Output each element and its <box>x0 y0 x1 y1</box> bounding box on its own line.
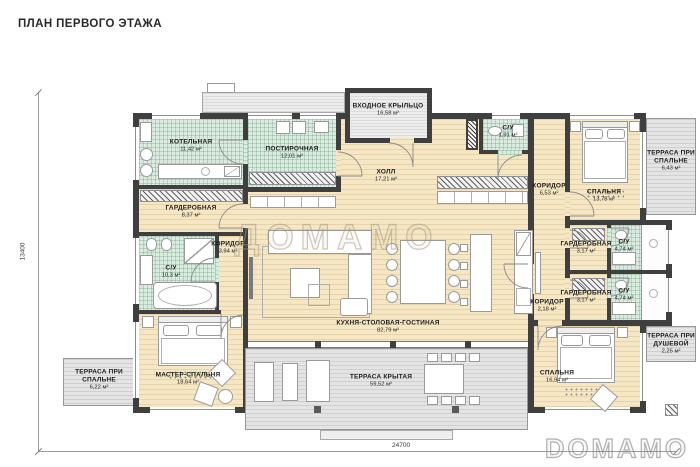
room-label-hall: ХОЛЛ17,21 м² <box>375 169 397 184</box>
dimension-height-label: 13400 <box>20 242 27 260</box>
room-label-bedroom-top: СПАЛЬНЯ13,78 м² <box>587 189 621 204</box>
room-label-terrace-shower: ТЕРРАСА ПРИ ДУШЕВОЙ2,25 м² <box>644 333 698 356</box>
floor-plan: ПЛАН ПЕРВОГО ЭТАЖА 24700 13400 <box>0 0 700 467</box>
watermark-corner: DOMAMO <box>545 434 689 465</box>
room-label-wc-2: С/У4,74 м² <box>615 288 634 303</box>
room-label-bathroom-master: С/У10,3 м² <box>162 265 181 280</box>
room-label-wardrobe-main: ГАРДЕРОБНАЯ8,37 м² <box>165 205 216 220</box>
room-label-master-bedroom: МАСТЕР-СПАЛЬНЯ18,64 м² <box>156 372 221 387</box>
room-label-wardrobe-1: ГАРДЕРОБНАЯ3,17 м² <box>560 241 611 256</box>
dimension-width-label: 24700 <box>392 442 410 449</box>
room-label-terrace-bedroom-top: ТЕРРАСА ПРИ СПАЛЬНЕ6,43 м² <box>647 150 695 173</box>
room-label-boiler: КОТЕЛЬНАЯ11,42 м² <box>170 139 212 154</box>
room-label-porch: ВХОДНОЕ КРЫЛЬЦО16,58 м² <box>353 103 424 118</box>
room-label-bedroom-bottom: СПАЛЬНЯ16,94 м² <box>540 370 574 385</box>
room-label-terrace-master: ТЕРРАСА ПРИ СПАЛЬНЕ6,22 м² <box>68 369 130 392</box>
watermark-center: ДОМАМО <box>235 218 440 258</box>
room-label-kitchen-living: КУХНЯ-СТОЛОВАЯ-ГОСТИНАЯ82,79 м² <box>336 320 439 335</box>
room-label-laundry: ПОСТИРОЧНАЯ12,01 м² <box>265 146 318 161</box>
room-label-terrace-covered: ТЕРРАСА КРЫТАЯ59,52 м² <box>350 374 412 389</box>
room-label-corridor-small: КОРИДОР2,18 м² <box>530 299 563 314</box>
room-label-corridor-hall: КОРИДОР6,53 м² <box>532 183 565 198</box>
room-label-wardrobe-2: ГАРДЕРОБНАЯ3,17 м² <box>560 290 611 305</box>
room-label-wc-1: С/У4,74 м² <box>615 239 634 254</box>
page-title: ПЛАН ПЕРВОГО ЭТАЖА <box>18 18 162 30</box>
room-label-wc-hall: С/У1,91 м² <box>499 125 518 140</box>
